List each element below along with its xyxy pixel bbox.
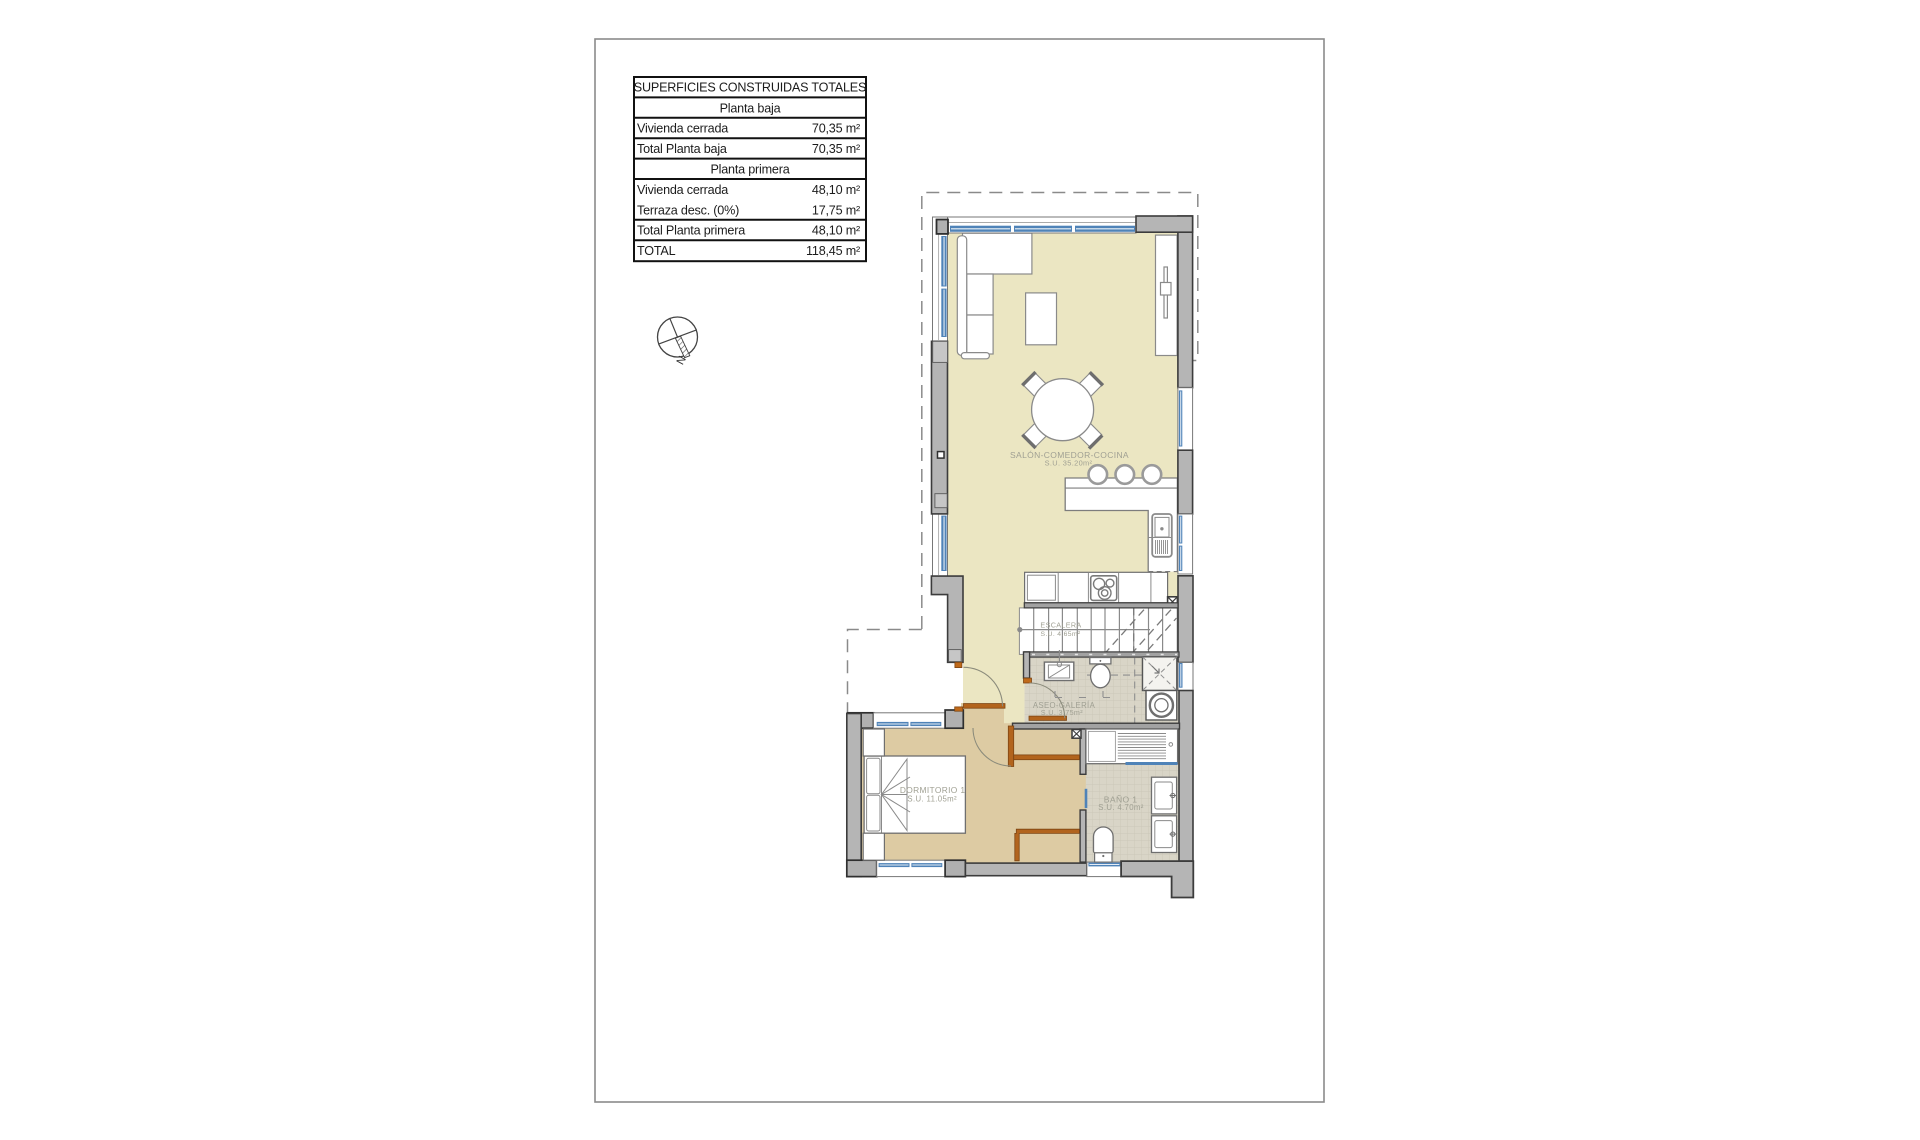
svg-text:Total Planta primera: Total Planta primera (637, 224, 745, 238)
svg-text:Planta primera: Planta primera (710, 163, 789, 177)
svg-text:48,10 m²: 48,10 m² (812, 183, 860, 197)
svg-text:Terraza desc. (0%): Terraza desc. (0%) (637, 203, 739, 217)
svg-text:TOTAL: TOTAL (637, 244, 676, 258)
svg-text:S.U. 3.75m²: S.U. 3.75m² (1041, 708, 1083, 717)
svg-text:Total Planta baja: Total Planta baja (637, 142, 727, 156)
svg-text:S.U. 11.05m²: S.U. 11.05m² (907, 795, 957, 804)
svg-text:SUPERFICIES CONSTRUIDAS TOTALE: SUPERFICIES CONSTRUIDAS TOTALES (634, 81, 866, 95)
svg-text:S.U. 4.70m²: S.U. 4.70m² (1098, 803, 1143, 812)
svg-text:17,75 m²: 17,75 m² (812, 203, 860, 217)
svg-text:48,10 m²: 48,10 m² (812, 224, 860, 238)
svg-text:S.U. 35.20m²: S.U. 35.20m² (1045, 459, 1093, 468)
svg-text:Planta baja: Planta baja (720, 101, 781, 115)
svg-text:Vivienda cerrada: Vivienda cerrada (637, 122, 728, 136)
svg-text:S.U. 4.65m²: S.U. 4.65m² (1040, 631, 1080, 638)
svg-text:70,35 m²: 70,35 m² (812, 122, 860, 136)
svg-text:118,45 m²: 118,45 m² (806, 244, 860, 258)
svg-text:70,35 m²: 70,35 m² (812, 142, 860, 156)
svg-text:ESCALERA: ESCALERA (1040, 621, 1081, 630)
svg-text:Vivienda cerrada: Vivienda cerrada (637, 183, 728, 197)
